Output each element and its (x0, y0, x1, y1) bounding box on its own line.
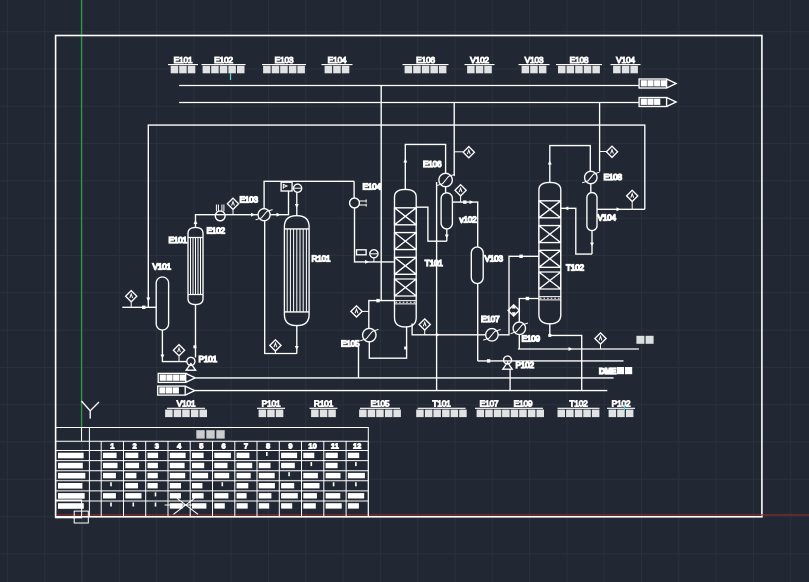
svg-text:P102: P102 (612, 399, 631, 409)
svg-text:E109: E109 (522, 335, 541, 344)
svg-text:T101: T101 (432, 399, 451, 409)
svg-text:E101: E101 (169, 236, 188, 245)
svg-text:V102: V102 (470, 55, 489, 65)
svg-text:8: 8 (266, 442, 270, 451)
svg-text:3: 3 (155, 442, 159, 451)
svg-text:E103: E103 (275, 55, 294, 65)
svg-text:V101: V101 (153, 263, 172, 272)
svg-text:E107: E107 (481, 315, 500, 324)
svg-text:E105: E105 (341, 340, 360, 349)
svg-text:E106: E106 (423, 160, 442, 169)
svg-text:E108: E108 (570, 55, 589, 65)
svg-text:10: 10 (308, 442, 316, 451)
svg-text:P101: P101 (199, 355, 218, 364)
svg-text:R101: R101 (312, 255, 331, 264)
svg-text:E104: E104 (363, 183, 382, 192)
svg-text:V104: V104 (598, 214, 617, 223)
svg-text:5: 5 (199, 442, 203, 451)
svg-text:E102: E102 (207, 227, 226, 236)
svg-text:12: 12 (353, 442, 361, 451)
svg-text:9: 9 (288, 442, 292, 451)
svg-text:P101: P101 (262, 399, 281, 409)
svg-text:11: 11 (331, 442, 339, 451)
svg-text:T102: T102 (569, 399, 588, 409)
svg-text:V103: V103 (525, 55, 544, 65)
svg-text:R101: R101 (314, 399, 334, 409)
svg-text:E106: E106 (416, 55, 435, 65)
svg-text:1: 1 (110, 442, 114, 451)
svg-text:V104: V104 (616, 55, 635, 65)
svg-text:2: 2 (133, 442, 137, 451)
svg-text:T101: T101 (425, 259, 444, 268)
svg-text:7: 7 (244, 442, 248, 451)
svg-text:DME: DME (599, 367, 617, 376)
svg-text:E104: E104 (328, 55, 347, 65)
svg-text:V103: V103 (485, 255, 504, 264)
svg-text:E101: E101 (174, 55, 193, 65)
svg-text:E102: E102 (214, 55, 233, 65)
svg-text:E103: E103 (240, 196, 259, 205)
svg-text:6: 6 (222, 442, 226, 451)
svg-text:v102: v102 (460, 216, 478, 225)
svg-text:E108: E108 (604, 173, 623, 182)
svg-text:E107: E107 (480, 399, 499, 409)
svg-text:T102: T102 (566, 264, 585, 273)
svg-text:V101: V101 (177, 399, 196, 409)
svg-text:P102: P102 (516, 361, 535, 370)
svg-text:E109: E109 (514, 399, 533, 409)
svg-text:E105: E105 (371, 399, 390, 409)
